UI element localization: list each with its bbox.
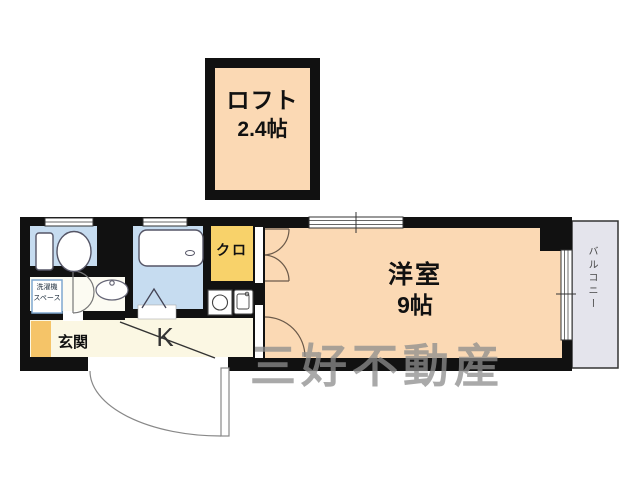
bathtub-icon [139, 230, 203, 266]
loft-name: ロフト [205, 86, 320, 116]
entrance-label: 玄関 [50, 331, 96, 352]
floor-plan: ロフト 2.4帖 洋室 9帖 クロ K 玄関 洗濯機 スペース バルコニー 三好… [0, 0, 640, 480]
toilet-icon [36, 232, 91, 272]
laundry-line1: 洗濯機 [30, 283, 64, 294]
loft-area: 2.4帖 [205, 116, 320, 143]
realtor-watermark: 三好不動産 [250, 330, 590, 396]
laundry-line2: スペース [30, 294, 64, 305]
floor-plan-drawing [0, 0, 640, 480]
shoe-cabinet [31, 321, 51, 357]
washbasin-icon [96, 280, 128, 300]
kitchen-counter [208, 290, 253, 315]
kitchen-label: K [130, 322, 200, 353]
laundry-space-label: 洗濯機 スペース [30, 283, 64, 304]
stove-burner-icon [208, 290, 232, 315]
main-room-label: 洋室 9帖 [320, 260, 510, 320]
loft-room-label: ロフト 2.4帖 [205, 86, 320, 143]
main-room-area: 9帖 [320, 291, 510, 320]
main-room-name: 洋室 [320, 260, 510, 291]
closet-label: クロ [209, 240, 255, 260]
